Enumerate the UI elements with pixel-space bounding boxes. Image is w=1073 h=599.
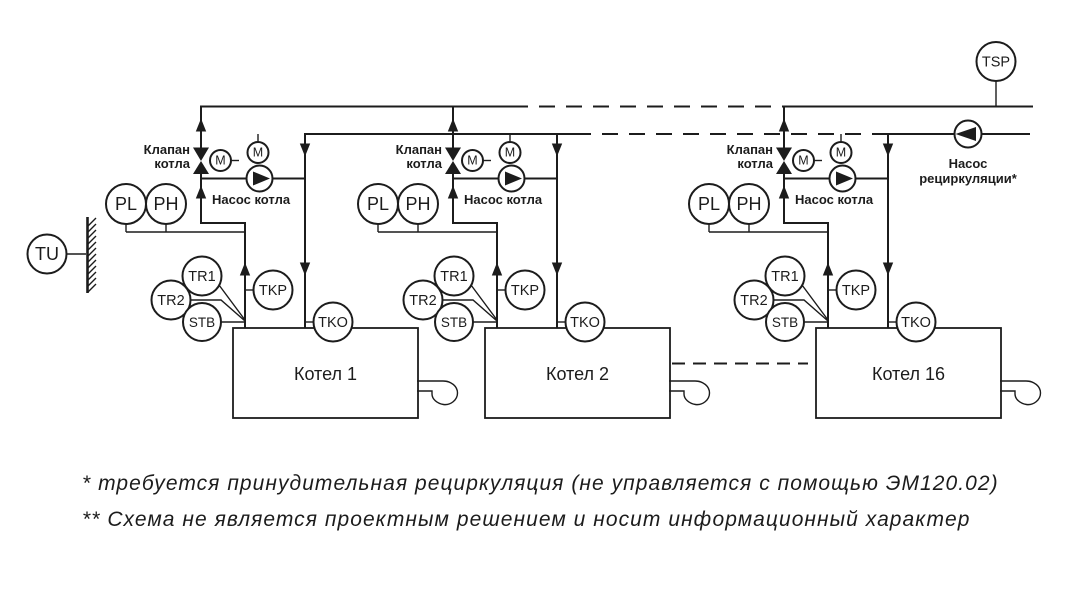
boiler-unit-16: M M PL PH TR1 TR2 STB TKP TKO Клапан кот…	[689, 107, 1041, 419]
sensor-tsp-label: TSP	[982, 55, 1010, 71]
flow-arrow-down-icon	[552, 263, 562, 276]
boiler-piping-diagram: M M PL PH TR1 TR2 STB TKP TKO Клапан кот…	[0, 0, 1073, 599]
sensor-tr1-label: TR1	[771, 269, 798, 285]
flow-arrow-up-icon	[492, 263, 502, 276]
flow-arrow-up-icon	[779, 186, 789, 199]
flow-arrow-down-icon	[300, 144, 310, 157]
burner-icon	[417, 381, 458, 405]
boiler-name: Котел 16	[872, 364, 945, 384]
valve-motor-label: M	[798, 154, 808, 168]
sensor-tkp-label: TKP	[259, 283, 287, 299]
recirculation-pump-assembly: Насос рециркуляции*	[919, 121, 1017, 187]
sensor-tko-label: TKO	[901, 315, 931, 331]
sensor-ph-label: PH	[153, 194, 178, 214]
valve-motor-label: M	[215, 154, 225, 168]
pump-label: Насос котла	[212, 192, 291, 207]
footnote-1: * требуется принудительная рециркуляция …	[82, 472, 999, 495]
sensor-stb-label: STB	[772, 315, 798, 330]
valve-label: Клапан	[396, 142, 442, 157]
sensor-tko-label: TKO	[570, 315, 600, 331]
burner-icon	[669, 381, 710, 405]
pump-label: Насос котла	[795, 192, 874, 207]
flow-arrow-up-icon	[823, 263, 833, 276]
sensor-tr2-label: TR2	[409, 293, 436, 309]
sensor-tr2-label: TR2	[157, 293, 184, 309]
flow-arrow-down-icon	[552, 144, 562, 157]
boiler-cascade-scheme: M M PL PH TR1 TR2 STB TKP TKO Клапан кот…	[0, 0, 1073, 599]
recirculation-pump-label: рециркуляции*	[919, 171, 1017, 186]
sensor-tu-label: TU	[35, 244, 59, 264]
sensor-tr1-label: TR1	[188, 269, 215, 285]
boiler-pump-icon	[499, 166, 525, 192]
pressure-sensor-connector	[378, 224, 497, 232]
pressure-sensor-connector	[709, 224, 828, 232]
sensor-pl-label: PL	[698, 194, 720, 214]
sensor-tko-label: TKO	[318, 315, 348, 331]
valve-label: котла	[406, 156, 442, 171]
boiler-pump-icon	[247, 166, 273, 192]
flow-arrow-down-icon	[883, 144, 893, 157]
sensor-stb-label: STB	[189, 315, 215, 330]
boiler-pump-icon	[830, 166, 856, 192]
sensor-tr2-label: TR2	[740, 293, 767, 309]
pressure-sensor-connector	[126, 224, 245, 232]
boiler-valve-icon	[445, 148, 461, 175]
flow-arrow-up-icon	[448, 186, 458, 199]
valve-label: котла	[154, 156, 190, 171]
flow-arrow-down-icon	[300, 263, 310, 276]
boiler-name: Котел 2	[546, 364, 609, 384]
valve-label: котла	[737, 156, 773, 171]
pump-label: Насос котла	[464, 192, 543, 207]
flow-arrow-up-icon	[448, 119, 458, 132]
pump-motor-label: M	[836, 146, 846, 160]
wall-hatching	[88, 218, 96, 292]
sensor-tsp-assembly: TSP	[977, 42, 1016, 107]
valve-label: Клапан	[727, 142, 773, 157]
footnote-2: ** Схема не является проектным решением …	[82, 508, 970, 531]
pump-motor-label: M	[253, 146, 263, 160]
sensor-tr1-label: TR1	[440, 269, 467, 285]
boiler-name: Котел 1	[294, 364, 357, 384]
pump-motor-label: M	[505, 146, 515, 160]
flow-arrow-down-icon	[883, 263, 893, 276]
valve-motor-label: M	[467, 154, 477, 168]
sensor-ph-label: PH	[736, 194, 761, 214]
burner-icon	[1000, 381, 1041, 405]
valve-label: Клапан	[144, 142, 190, 157]
sensor-tu-assembly: TU	[28, 217, 97, 293]
flow-arrow-up-icon	[240, 263, 250, 276]
sensor-ph-label: PH	[405, 194, 430, 214]
boiler-valve-icon	[193, 148, 209, 175]
flow-arrow-up-icon	[196, 186, 206, 199]
sensor-stb-label: STB	[441, 315, 467, 330]
flow-arrow-up-icon	[779, 119, 789, 132]
flow-arrow-up-icon	[196, 119, 206, 132]
sensor-tkp-label: TKP	[842, 283, 870, 299]
sensor-pl-label: PL	[115, 194, 137, 214]
sensor-tkp-label: TKP	[511, 283, 539, 299]
recirculation-pump-icon	[955, 121, 982, 148]
recirculation-pump-label: Насос	[949, 156, 988, 171]
sensor-pl-label: PL	[367, 194, 389, 214]
boiler-valve-icon	[776, 148, 792, 175]
